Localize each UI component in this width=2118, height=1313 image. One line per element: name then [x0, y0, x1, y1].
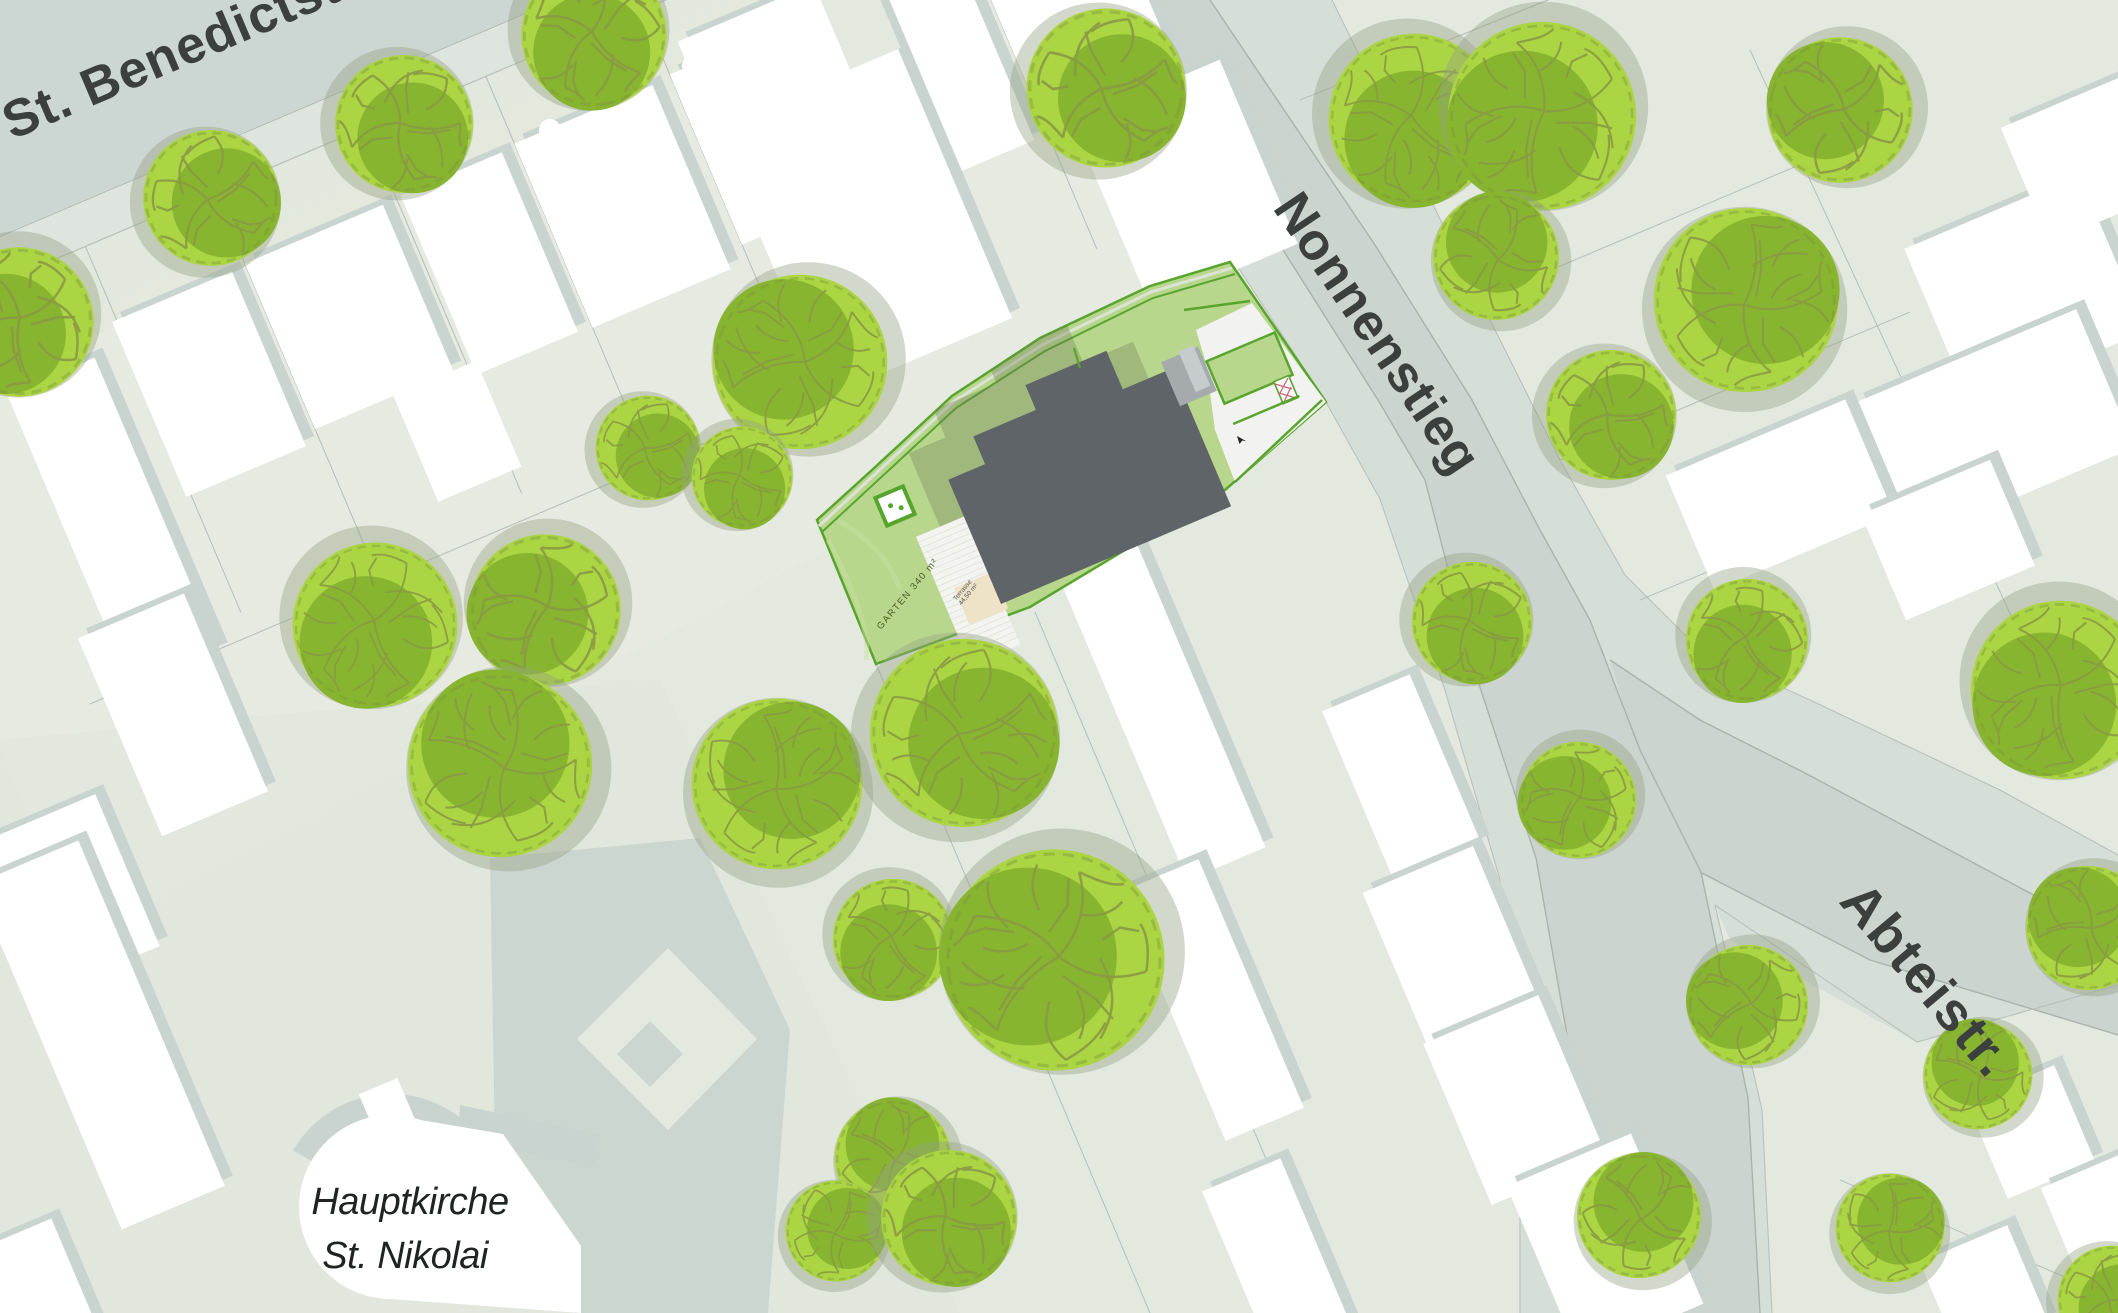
svg-text:Hauptkirche: Hauptkirche	[311, 1181, 508, 1223]
svg-text:St. Nikolai: St. Nikolai	[322, 1235, 490, 1277]
